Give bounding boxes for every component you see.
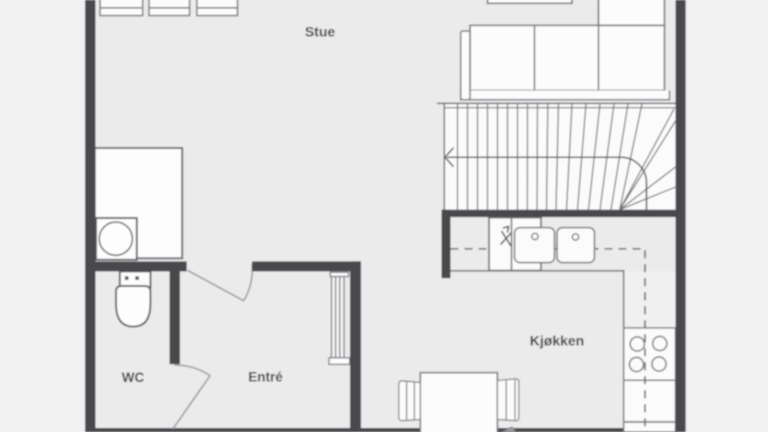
svg-text:Kjøkken: Kjøkken bbox=[530, 333, 584, 349]
svg-text:WC: WC bbox=[122, 370, 145, 385]
svg-text:Stue: Stue bbox=[305, 24, 336, 40]
svg-text:Entré: Entré bbox=[248, 370, 283, 385]
